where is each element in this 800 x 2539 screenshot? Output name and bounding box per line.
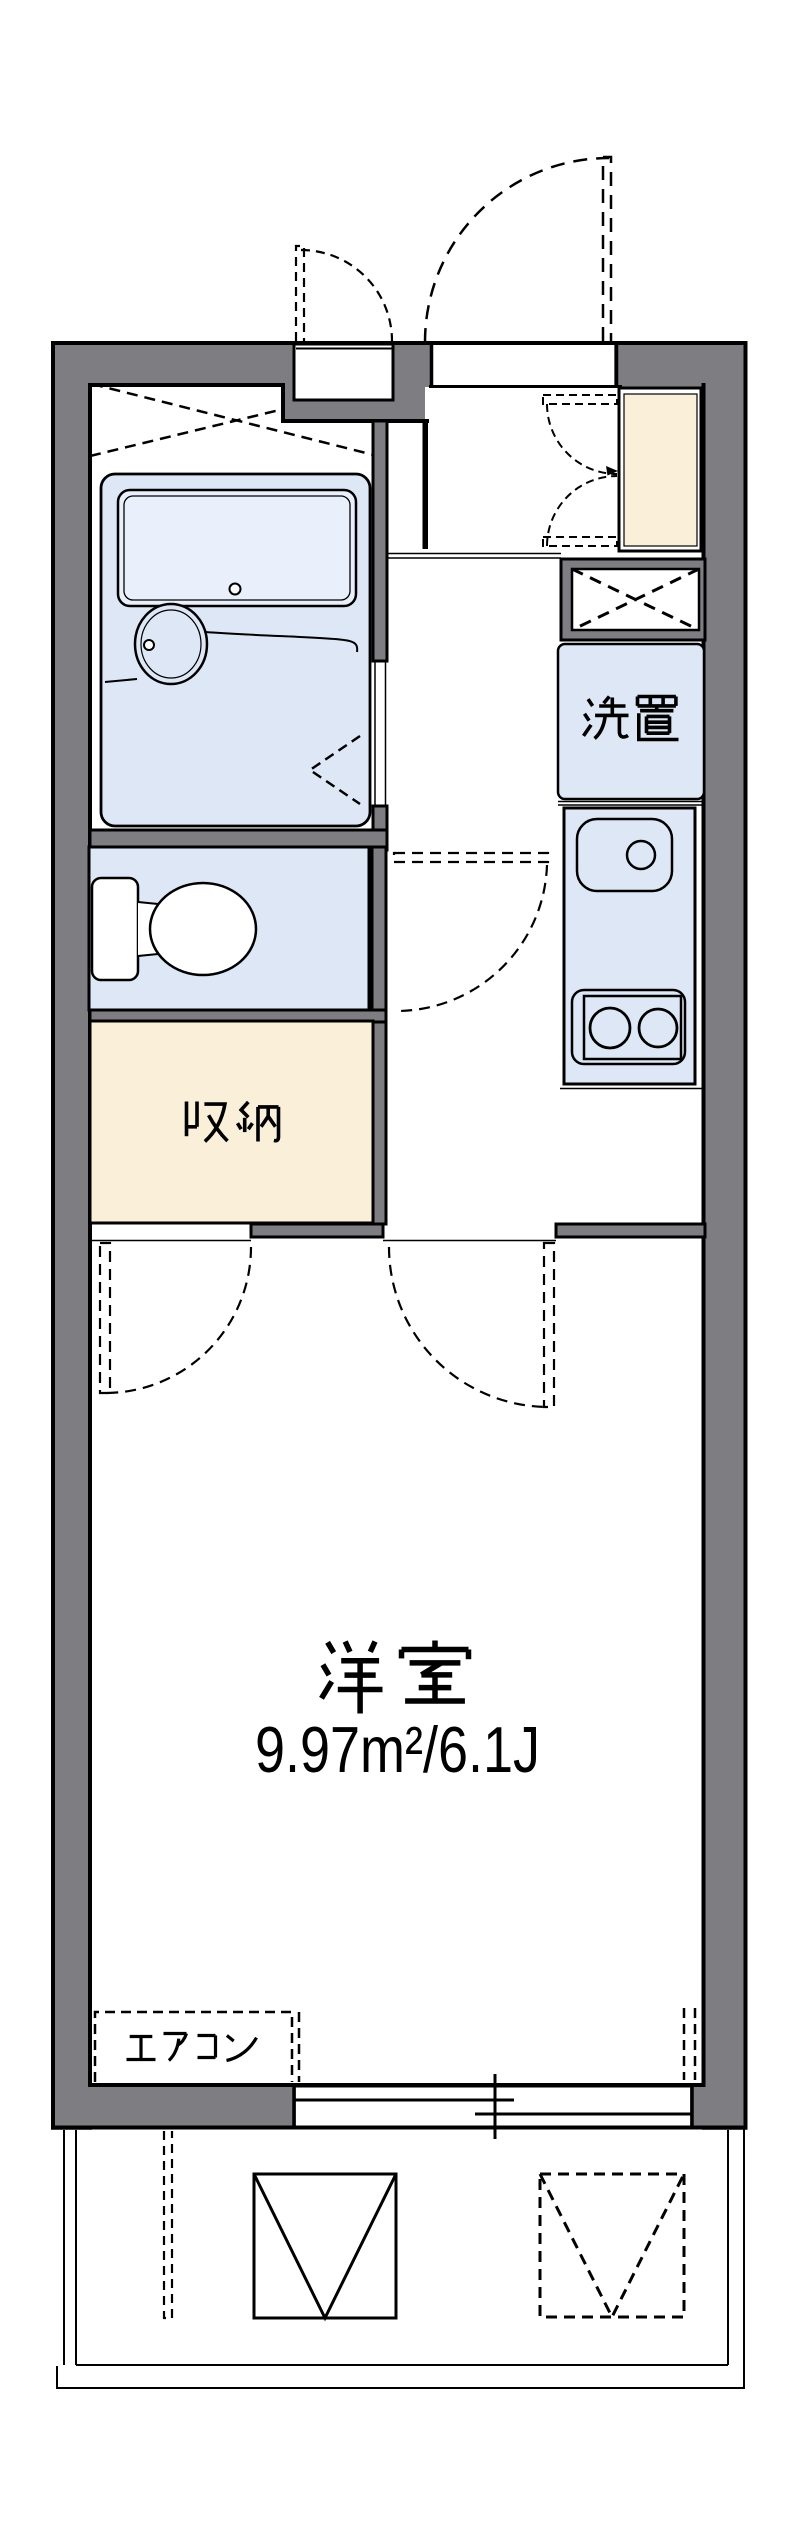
svg-text:9.97m²/6.1J: 9.97m²/6.1J [255,1713,540,1786]
